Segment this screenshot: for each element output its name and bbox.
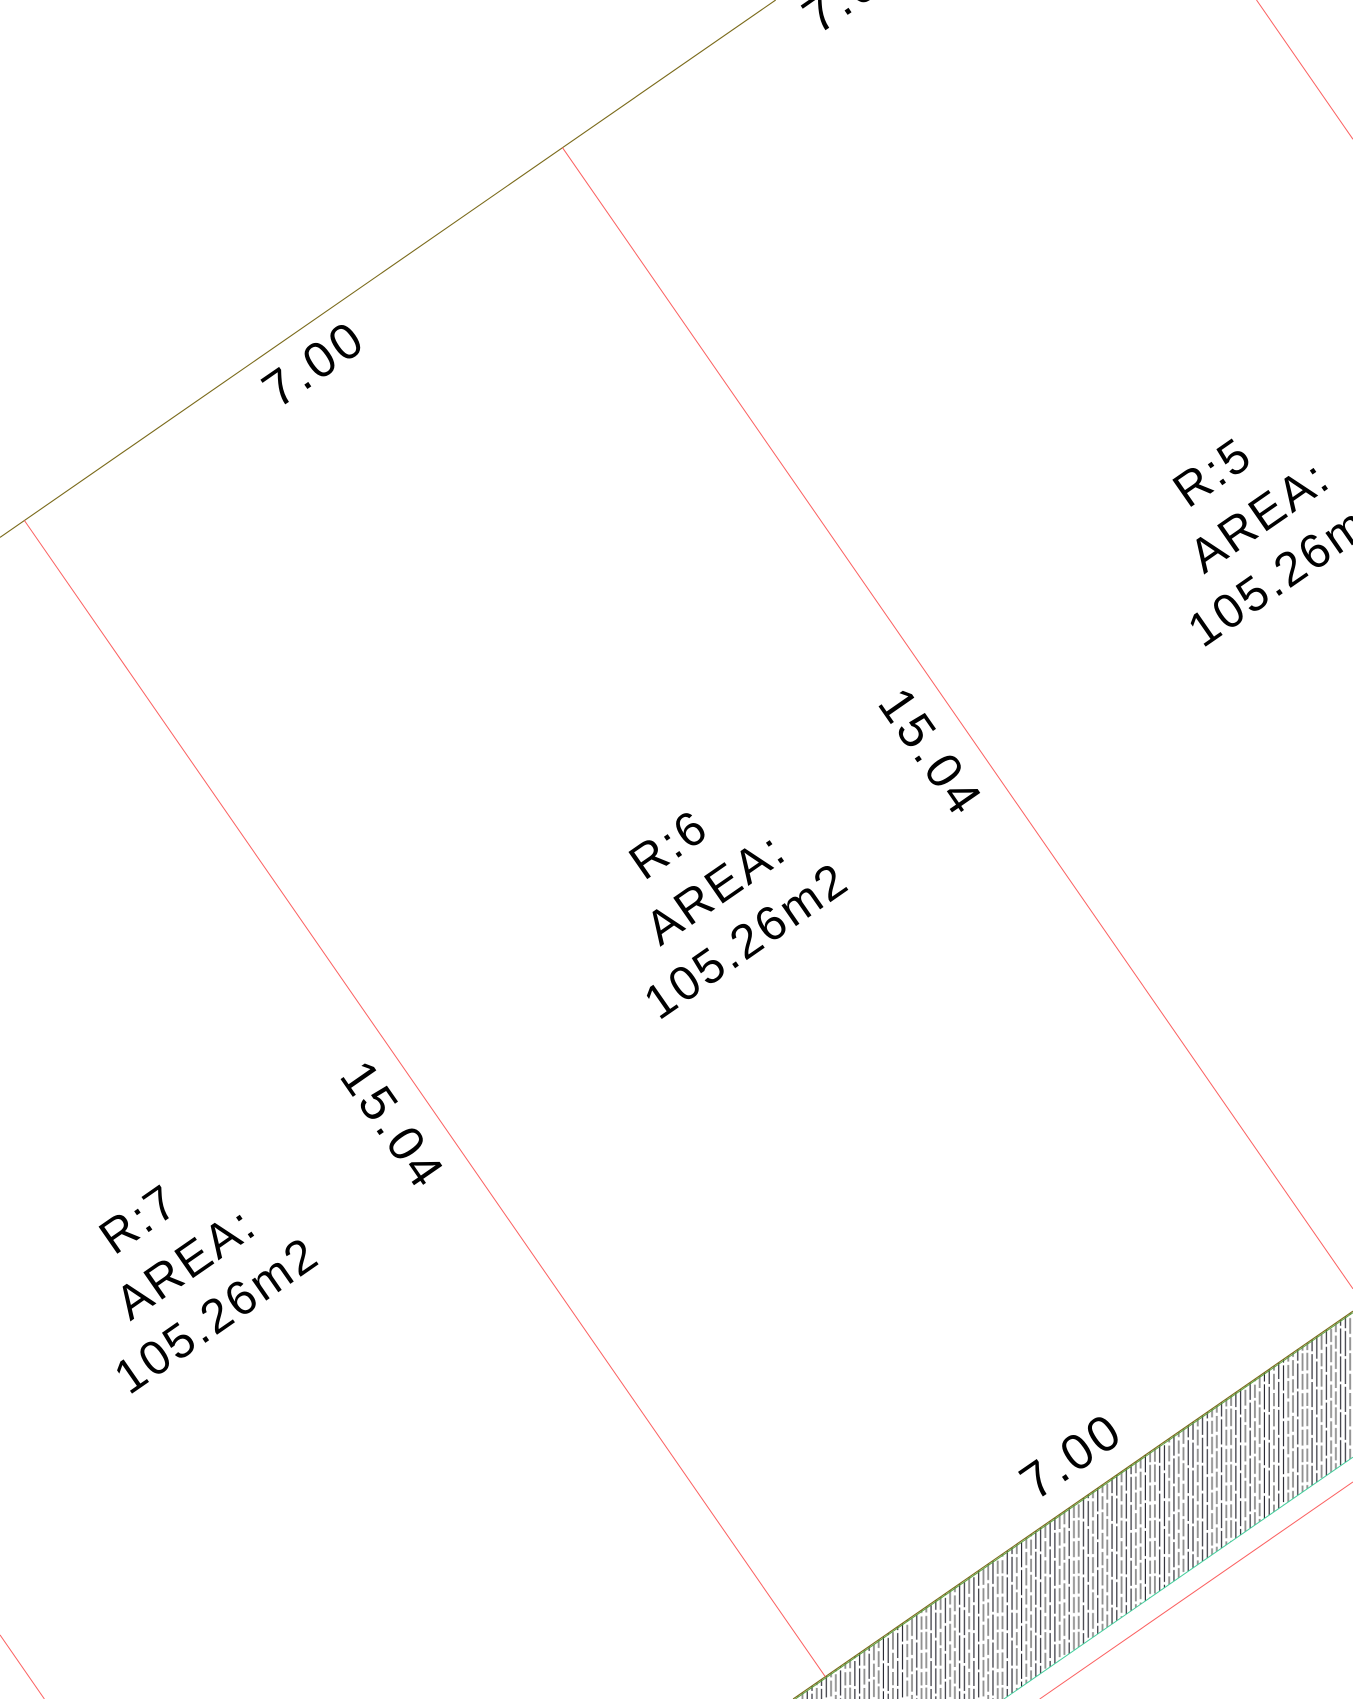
- svg-text:7.00: 7.00: [792, 0, 915, 44]
- svg-text:7.00: 7.00: [252, 309, 375, 418]
- svg-text:15.04: 15.04: [329, 1050, 456, 1199]
- svg-text:15.04: 15.04: [867, 678, 994, 827]
